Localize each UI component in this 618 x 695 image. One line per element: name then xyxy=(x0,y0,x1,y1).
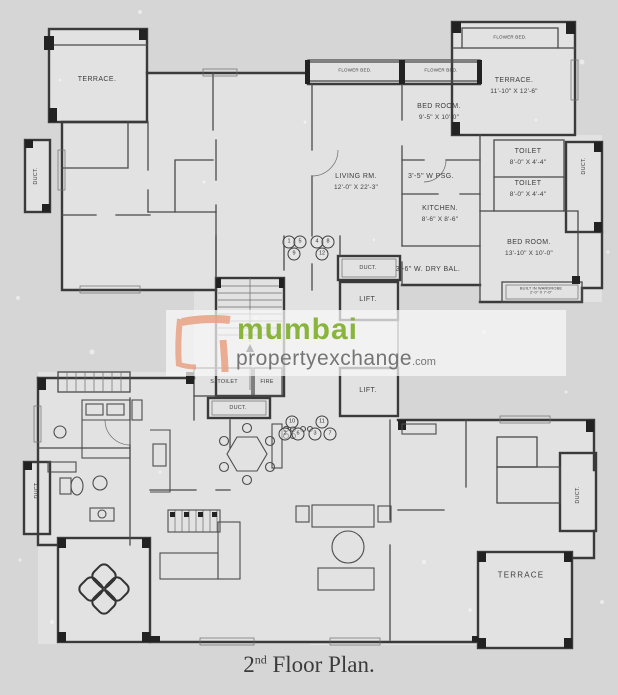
room-label-duct-right-top: DUCT. xyxy=(581,157,587,174)
unit-number-8: 8 xyxy=(322,236,335,249)
room-label-lift-bottom: LIFT. xyxy=(359,387,377,395)
room-label-flower-bed-1: FLOWER BED. xyxy=(338,69,371,74)
room-dims: 8'-0" X 4'-4" xyxy=(510,191,546,198)
room-label-terrace-top-left: TERRACE. xyxy=(78,76,117,84)
room-dims: 13'-10" X 10'-0" xyxy=(505,250,553,257)
unit-number-2: 2 xyxy=(279,428,292,441)
caption-text: Floor Plan. xyxy=(267,652,375,677)
watermark-brand-text: propertyexchange xyxy=(236,347,412,370)
room-dims: 8'-0" X 4'-4" xyxy=(510,159,546,166)
floor-plan-canvas: TERRACE. DUCT. FLOWER BED. FLOWER BED. F… xyxy=(0,0,618,695)
room-dims: 9'-5" X 10'-0" xyxy=(417,114,461,121)
unit-number-7: 7 xyxy=(324,428,337,441)
room-label-terrace-bottom: TERRACE xyxy=(498,572,545,581)
unit-number-9: 9 xyxy=(288,248,301,261)
room-name: BED ROOM. xyxy=(505,239,553,247)
unit-number-6: 6 xyxy=(292,428,305,441)
room-dims: 2'-0" X 7'-0" xyxy=(520,291,562,295)
caption-number: 2 xyxy=(243,652,255,677)
room-label-toilet-2: TOILET 8'-0" X 4'-4" xyxy=(510,180,546,198)
room-name: KITCHEN. xyxy=(422,205,458,213)
unit-number-3: 3 xyxy=(309,428,322,441)
room-label-bed-room-top: BED ROOM. 9'-5" X 10'-0" xyxy=(417,103,461,121)
room-label-duct-core-bottom: DUCT. xyxy=(229,405,246,411)
room-label-bed-room-right: BED ROOM. 13'-10" X 10'-0" xyxy=(505,239,553,257)
room-name: LIVING RM. xyxy=(334,173,378,181)
room-label-terrace-top-right: TERRACE. 11'-10" X 12'-6" xyxy=(490,77,537,95)
watermark-brand-mumbai: mumbai xyxy=(237,315,358,345)
room-label-toilet-1: TOILET 8'-0" X 4'-4" xyxy=(510,148,546,166)
watermark-brand-suffix: .com xyxy=(412,356,436,368)
room-label-duct-core-top: DUCT. xyxy=(359,265,376,271)
caption-ordinal: nd xyxy=(255,652,267,666)
room-label-duct-left-bottom: DUCT. xyxy=(34,481,40,498)
room-name: TOILET xyxy=(510,180,546,188)
room-label-fire: FIRE xyxy=(260,379,273,385)
watermark-logo-icon xyxy=(172,312,236,374)
unit-number-5: 5 xyxy=(294,236,307,249)
room-label-duct-right-bottom: DUCT. xyxy=(575,486,581,503)
room-label-kitchen: KITCHEN. 8'-6" X 8'-6" xyxy=(422,205,458,223)
room-dims: 11'-10" X 12'-6" xyxy=(490,88,537,95)
watermark-brand-propertyexchange: propertyexchange.com xyxy=(236,348,436,369)
caption-floor-plan-title: 2nd Floor Plan. xyxy=(0,652,618,678)
room-label-lift-top: LIFT. xyxy=(359,296,377,304)
room-name: TERRACE. xyxy=(490,77,537,85)
room-name: BED ROOM. xyxy=(417,103,461,111)
room-label-living-rm: LIVING RM. 12'-0" X 22'-3" xyxy=(334,173,378,191)
room-label-s-toilet: S. TOILET xyxy=(210,379,238,385)
room-label-dry-bal: 3'-6" W. DRY BAL. xyxy=(396,266,460,274)
room-label-flower-bed-2: FLOWER BED. xyxy=(424,69,457,74)
room-dims: 12'-0" X 22'-3" xyxy=(334,184,378,191)
unit-number-12: 12 xyxy=(316,248,329,261)
room-label-flower-bed-3: FLOWER BED. xyxy=(493,36,526,41)
room-label-wardrobe: BUILT IN WARDROBE 2'-0" X 7'-0" xyxy=(520,287,562,296)
room-label-psg: 3'-5" W PSG. xyxy=(408,173,454,181)
room-name: TOILET xyxy=(510,148,546,156)
room-dims: 8'-6" X 8'-6" xyxy=(422,216,458,223)
unit-number-11: 11 xyxy=(316,416,329,429)
room-label-duct-left-top: DUCT. xyxy=(33,167,39,184)
